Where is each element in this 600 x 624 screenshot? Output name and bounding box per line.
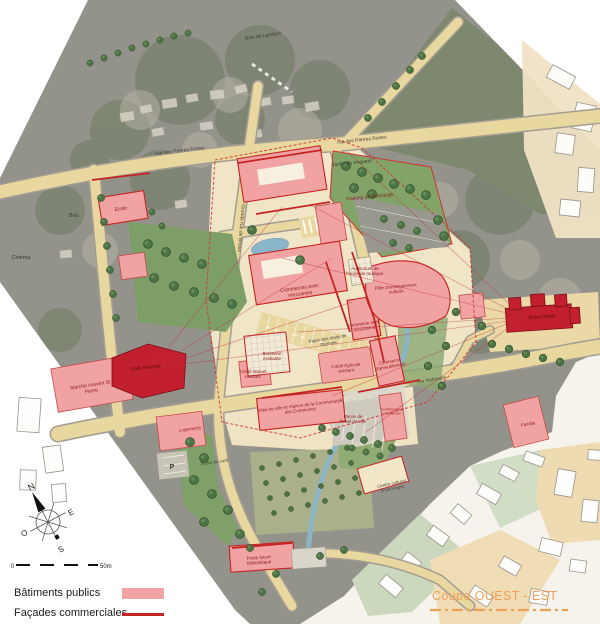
map-drawing: N E O S 0 50m bbox=[0, 0, 600, 624]
scale-start: 0 bbox=[11, 564, 15, 570]
scale-bar: 0 50m bbox=[11, 564, 112, 570]
compass-s: S bbox=[57, 544, 66, 554]
building-center-north bbox=[315, 202, 347, 244]
cadastral-left bbox=[17, 397, 67, 502]
scale-end: 50m bbox=[100, 564, 112, 570]
compass-e: E bbox=[67, 507, 76, 517]
building-brasserie bbox=[244, 332, 290, 376]
legend-row-facades-commerciales: Façades commerciales bbox=[14, 603, 194, 623]
legend-label-facades-commerciales: Façades commerciales bbox=[14, 607, 127, 619]
legend: Bâtiments publics Façades commerciales bbox=[14, 583, 194, 623]
compass-o: O bbox=[20, 528, 30, 539]
west-park bbox=[128, 222, 247, 332]
legend-row-batiments-publics: Bâtiments publics bbox=[14, 583, 194, 603]
urban-plan-map: N E O S 0 50m Bois du Lambon rue des Pie… bbox=[0, 0, 600, 624]
legend-swatch-batiments-publics bbox=[122, 588, 164, 599]
building-logements bbox=[156, 411, 206, 450]
building-small-west bbox=[118, 252, 147, 279]
building-east-small bbox=[459, 293, 485, 319]
small-parking-p bbox=[157, 451, 190, 480]
compass-rose: N E O S bbox=[14, 481, 75, 555]
legend-label-batiments-publics: Bâtiments publics bbox=[14, 587, 100, 599]
legend-swatch-facades-commerciales bbox=[122, 613, 164, 616]
section-marker-label: Coupe OUEST - EST bbox=[432, 589, 557, 603]
